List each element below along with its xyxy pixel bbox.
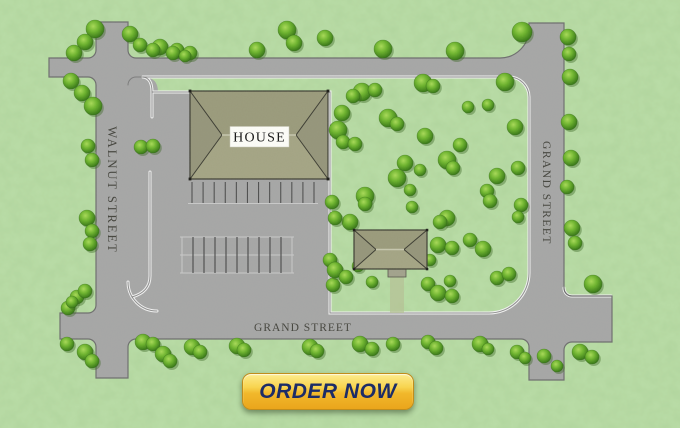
- tree: [560, 29, 576, 45]
- tree: [426, 79, 440, 93]
- tree: [286, 35, 302, 51]
- tree: [78, 284, 92, 298]
- tree: [163, 354, 177, 368]
- tree: [430, 285, 446, 301]
- tree: [397, 155, 413, 171]
- tree: [482, 343, 494, 355]
- tree: [179, 50, 191, 62]
- tree: [404, 184, 416, 196]
- tree: [79, 210, 95, 226]
- tree: [453, 138, 467, 152]
- tree: [519, 352, 531, 364]
- tree: [502, 267, 516, 281]
- tree: [512, 22, 532, 42]
- tree: [85, 354, 99, 368]
- tree: [561, 114, 577, 130]
- tree: [249, 42, 265, 58]
- tree: [325, 195, 339, 209]
- tree: [537, 349, 551, 363]
- tree: [568, 236, 582, 250]
- street-label-grand-right: GRAND STREET: [540, 141, 552, 245]
- tree: [374, 40, 392, 58]
- tree: [326, 278, 340, 292]
- tree: [483, 194, 497, 208]
- tree: [310, 344, 324, 358]
- tree: [489, 168, 505, 184]
- tree: [63, 73, 79, 89]
- tree: [346, 89, 360, 103]
- tree: [334, 105, 350, 121]
- tree: [133, 38, 147, 52]
- tree: [406, 201, 418, 213]
- tree: [417, 128, 433, 144]
- tree: [584, 275, 602, 293]
- tree: [444, 275, 456, 287]
- tree: [66, 45, 82, 61]
- tree: [146, 43, 160, 57]
- tree: [60, 337, 74, 351]
- tree: [193, 345, 207, 359]
- tree: [507, 119, 523, 135]
- site-map-page: WALNUT STREET GRAND STREET GRAND STREET …: [0, 0, 680, 428]
- tree: [85, 153, 99, 167]
- tree: [430, 237, 446, 253]
- tree: [366, 276, 378, 288]
- tree: [433, 215, 447, 229]
- tree: [475, 241, 491, 257]
- tree: [463, 233, 477, 247]
- tree: [342, 214, 358, 230]
- tree: [511, 161, 525, 175]
- tree: [66, 296, 78, 308]
- street-label-walnut: WALNUT STREET: [105, 126, 119, 254]
- tree: [83, 237, 97, 251]
- tree: [339, 270, 353, 284]
- tree: [562, 47, 576, 61]
- tree: [85, 224, 99, 238]
- tree: [496, 73, 514, 91]
- map-illustration: WALNUT STREET GRAND STREET GRAND STREET …: [0, 0, 680, 428]
- tree: [237, 343, 251, 357]
- tree: [445, 289, 459, 303]
- tree: [551, 360, 563, 372]
- tree: [317, 30, 333, 46]
- tree: [514, 198, 528, 212]
- tree: [368, 83, 382, 97]
- tree: [585, 350, 599, 364]
- tree: [562, 69, 578, 85]
- tree: [348, 137, 362, 151]
- tree: [388, 169, 406, 187]
- house-label: HOUSE: [233, 131, 286, 146]
- tree: [390, 117, 404, 131]
- tree: [564, 220, 580, 236]
- tree: [563, 150, 579, 166]
- order-now-button[interactable]: ORDER NOW: [242, 373, 414, 410]
- tree: [445, 241, 459, 255]
- house-building: HOUSE: [189, 90, 330, 181]
- street-label-grand-bottom: GRAND STREET: [254, 322, 352, 334]
- road-east-arm: [529, 296, 612, 342]
- tree: [512, 211, 524, 223]
- tree: [414, 164, 426, 176]
- tree: [81, 139, 95, 153]
- tree: [336, 135, 350, 149]
- tree: [446, 161, 460, 175]
- tree: [328, 211, 342, 225]
- tree: [84, 97, 102, 115]
- tree: [446, 42, 464, 60]
- tree: [358, 197, 372, 211]
- tree: [146, 139, 160, 153]
- tree: [482, 99, 494, 111]
- tree: [429, 341, 443, 355]
- tree: [386, 337, 400, 351]
- tree: [560, 180, 574, 194]
- tree: [462, 101, 474, 113]
- tree: [166, 46, 180, 60]
- tree: [365, 342, 379, 356]
